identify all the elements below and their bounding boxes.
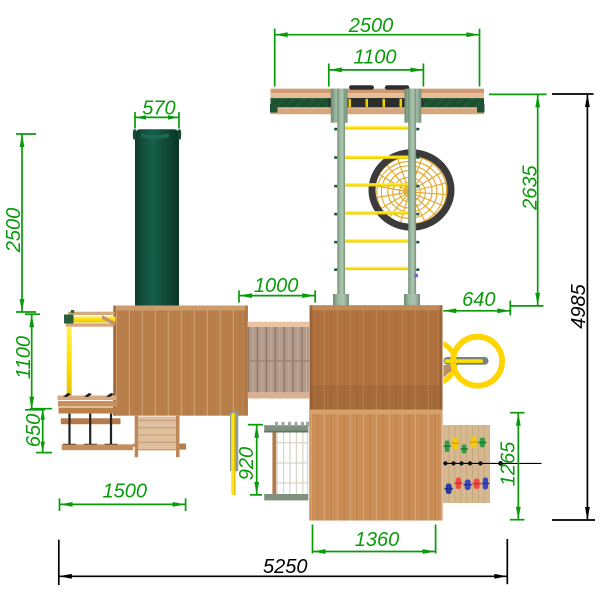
svg-text:640: 640	[462, 289, 495, 311]
svg-text:2500: 2500	[348, 15, 394, 37]
svg-text:1360: 1360	[355, 529, 400, 551]
svg-text:920: 920	[236, 447, 258, 480]
svg-text:4985: 4985	[568, 283, 590, 328]
svg-text:2500: 2500	[3, 208, 25, 254]
svg-text:5250: 5250	[263, 556, 308, 578]
svg-text:1265: 1265	[498, 441, 520, 486]
svg-text:1500: 1500	[103, 481, 148, 503]
svg-text:650: 650	[23, 414, 45, 447]
svg-text:570: 570	[142, 98, 175, 120]
svg-text:2635: 2635	[520, 164, 542, 210]
svg-text:1000: 1000	[254, 275, 299, 297]
svg-text:1100: 1100	[353, 46, 396, 68]
svg-text:1100: 1100	[13, 336, 35, 379]
